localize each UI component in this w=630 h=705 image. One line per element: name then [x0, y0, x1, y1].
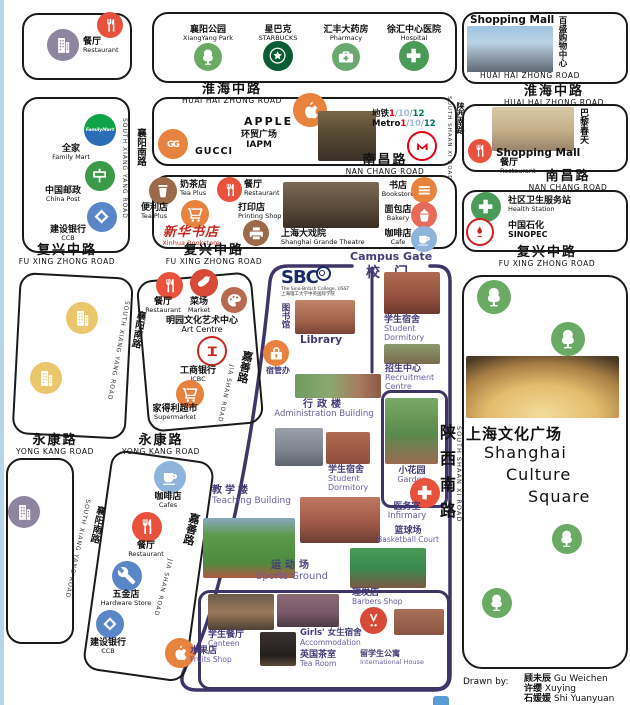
- culture-square-en2: Culture: [506, 465, 571, 484]
- iapm-label: 环贸广场 IAPM: [231, 130, 287, 150]
- shaanxi-road-en-n: SOUTH SHAAN XI ROAD: [446, 96, 452, 178]
- art-palette-icon: [221, 287, 247, 313]
- campus-neighborhood-map: 餐厅 Restaurant 襄阳公园 XiangYang Park 星巴克 ST…: [0, 0, 630, 705]
- printer-icon: [243, 220, 269, 246]
- building-icon: [30, 362, 62, 394]
- pharmacy-icon: [332, 43, 360, 71]
- restaurant-icon: [156, 272, 183, 299]
- hospital-cross-icon: [399, 41, 429, 71]
- parkson-vertical-name: 百盛购物中心: [556, 16, 568, 74]
- park-tree-icon: [194, 43, 222, 71]
- credit-name-3: 石媛媛 Shi Yuanyuan: [524, 691, 614, 704]
- page-edge-strip: [0, 0, 4, 705]
- convenience-label: 便利店 Tea Plus: [141, 203, 179, 220]
- parkson-title: Shopping Mall: [470, 14, 554, 26]
- park-tree-icon: [477, 280, 511, 314]
- familymart-label: 全家 Family Mart: [42, 144, 100, 161]
- nw-restaurant-label: 餐厅 Restaurant: [83, 37, 129, 54]
- shaanxi-road-en-mid: SOUTH SHAAN XI ROAD: [455, 426, 463, 561]
- art-centre-label: 明园文化艺术中心 Art Centre: [152, 316, 252, 335]
- nanchang-road-label-e: 南昌路 NAN CHANG ROAD: [516, 170, 620, 192]
- dormitory1-label: 学生宿舍 Student Dormitory: [384, 315, 442, 343]
- mid-restaurant-label: 餐厅 Restaurant: [244, 180, 286, 197]
- parkson-mall-photo: [467, 26, 553, 73]
- huaihai-road-label-ne: HUAI HAI ZHONG ROAD: [468, 72, 592, 80]
- gucci-icon: GG: [158, 129, 188, 159]
- canteen-photo: [208, 594, 274, 630]
- credits-label: Drawn by:: [463, 677, 509, 687]
- fuxing-road-label-mid: 复兴中路 FU XING ZHONG ROAD: [155, 244, 273, 266]
- culture-square-photo: [466, 356, 619, 418]
- icbc-icon: [197, 336, 227, 366]
- library-photo: [295, 300, 355, 334]
- svg-text:GG: GG: [167, 140, 180, 150]
- china-post-label: 中国邮政 China Post: [34, 186, 92, 203]
- gucci-label: GUCCI: [195, 146, 233, 157]
- tearoom-label: 英国茶室 Tea Room: [300, 650, 364, 668]
- sinopec-icon: [466, 218, 494, 246]
- sw-restaurant-label: 餐厅 Restaurant: [118, 541, 174, 558]
- recruitment-photo: [384, 344, 440, 364]
- restaurant-icon: [468, 139, 492, 163]
- restaurant-icon: [132, 512, 162, 542]
- recruitment-label: 招生中心 Recruitment Centre: [385, 364, 443, 392]
- cafes-coffee-icon: [154, 461, 186, 493]
- xiangyang-park-label: 襄阳公园 XiangYang Park: [177, 25, 239, 42]
- building-icon: [8, 496, 40, 528]
- library-en: Library: [300, 334, 342, 346]
- market-eggplant-icon: [190, 269, 218, 297]
- apple-label: APPLE: [244, 115, 293, 128]
- girls-accommodation-label: Girls' 女生宿舍 Accommodation: [300, 629, 390, 647]
- teaching-building-photo: [300, 497, 380, 543]
- printemps-photo: [492, 107, 574, 151]
- grande-theatre-label: 上海大戏院 Shanghai Grande Theatre: [281, 229, 391, 246]
- dormitory2-label: 学生宿舍 Student Dormitory: [328, 465, 382, 493]
- park-tree-icon: [552, 524, 582, 554]
- bookstore-icon: [411, 177, 437, 203]
- starbucks-label: 星巴克 STARBUCKS: [247, 25, 309, 42]
- international-house-photo: [394, 609, 444, 635]
- familymart-icon: FamilyMart: [84, 114, 116, 146]
- building-icon: [66, 302, 98, 334]
- dorm-office-lock-icon: [263, 340, 289, 366]
- barbers-shop-label: 理发店 Barbers Shop: [352, 588, 422, 606]
- restaurant-icon: [97, 12, 123, 38]
- international-house-label: 留学生公寓 International House: [360, 650, 446, 666]
- dormitory2-gray-photo: [275, 428, 323, 466]
- supermarket-label: 家得利超市 Supermarket: [144, 404, 206, 421]
- dormitory2-brick-photo: [326, 432, 370, 464]
- sinopec-label: 中国石化 SINOPEC: [508, 221, 578, 240]
- basketball-court-photo: [350, 548, 426, 588]
- tearoom-photo: [260, 632, 296, 666]
- grande-theatre-photo: [283, 182, 379, 228]
- culture-square-en1: Shanghai: [484, 443, 567, 462]
- teaplus-label: 奶茶店 Tea Plus: [180, 180, 220, 197]
- park-tree-icon: [482, 588, 512, 618]
- building-icon: [47, 29, 79, 61]
- bakery-cake-icon: [411, 202, 437, 228]
- xiangyang-road-zh-n: 襄阳南路: [133, 128, 147, 194]
- dormitory1-photo: [384, 272, 440, 314]
- browser-scroll-tab: [433, 696, 449, 705]
- convenience-cart-icon: [181, 200, 209, 228]
- sw-ccb-label: 建设银行 CCB: [80, 638, 136, 655]
- admin-building-label: 行政楼 Administration Building: [268, 399, 380, 420]
- hospital-label: 徐汇中心医院 Hospital: [381, 25, 447, 42]
- hardware-store-label: 五金店 Hardware Store: [94, 590, 158, 607]
- art-restaurant-label: 餐厅 Restaurant: [142, 297, 184, 314]
- hardware-wrench-icon: [112, 561, 142, 591]
- fruits-shop-label: 水果店 Fruits Shop: [190, 646, 250, 664]
- xiangyang-road-en-n: SOUTH XIANG YANG ROAD: [121, 118, 128, 243]
- library-zh: 图书馆: [279, 303, 291, 337]
- nanchang-road-label: 南昌路 NAN CHANG ROAD: [330, 154, 440, 176]
- garden-photo: [385, 398, 438, 464]
- cafes-label: 咖啡店 Cafes: [142, 492, 194, 509]
- cafe-coffee-icon: [411, 226, 437, 252]
- cafe-label: 咖啡店 Cafe: [381, 229, 415, 246]
- culture-square-en3: Square: [528, 487, 590, 506]
- accommodation-photo: [277, 594, 339, 627]
- infirmary-label: 医务室 Infirmary: [378, 502, 436, 522]
- ccb-label: 建设银行 CCB: [40, 225, 96, 242]
- starbucks-icon: [263, 41, 293, 71]
- health-station-label: 社区卫生服务站 Health Station: [508, 196, 592, 213]
- dorm-office-label: 宿管办: [258, 367, 298, 376]
- sbc-college-logo: SBC The Sino-British College, USST 上海理工大…: [281, 268, 349, 298]
- ccb-icon: [96, 610, 124, 638]
- printing-shop-label: 打印店 Printing Shop: [238, 203, 280, 220]
- icbc-label: 工商银行 ICBC: [170, 366, 226, 383]
- sbc-logo-ring: [316, 266, 331, 281]
- pharmacy-label: 汇丰大药房 Pharmacy: [315, 25, 377, 42]
- teaching-building-label: 教学楼 Teaching Building: [212, 485, 312, 506]
- market-label: 菜场 Market: [182, 297, 216, 314]
- teaplus-cup-icon: [149, 177, 177, 205]
- bookstore-label: 书店 Bookstore: [381, 181, 415, 198]
- restaurant-icon: [217, 177, 242, 202]
- bakery-label: 面包店 Bakery: [381, 205, 415, 222]
- yongkang-road-label-w: 永康路 YONG KANG ROAD: [12, 434, 98, 456]
- metro-lines-label: 地铁1/10/12 Metro1/10/12: [372, 110, 436, 130]
- culture-square-zh: 上海文化广场: [466, 423, 562, 444]
- admin-building-photo: [295, 374, 381, 398]
- sports-ground-label: 运动场 Sports Ground: [242, 560, 342, 582]
- basketball-court-label: 篮球场 Basketball Court: [372, 526, 444, 544]
- park-tree-icon: [551, 322, 585, 356]
